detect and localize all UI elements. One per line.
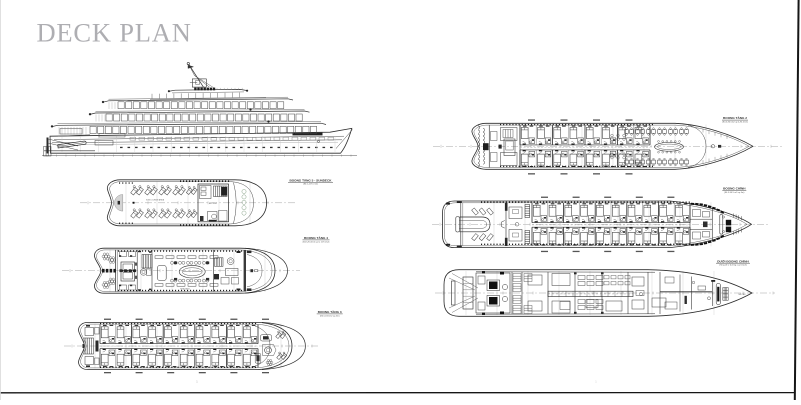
svg-text:(84.5-94.5m2 up to 117.5m2): (84.5-94.5m2 up to 117.5m2) (303, 240, 330, 243)
svg-text:MŨI TÀU: MŨI TÀU (739, 293, 747, 296)
svg-text:SUN LOUNGE AREA: SUN LOUNGE AREA (146, 198, 165, 201)
svg-text:BOONG TẦNG 4: BOONG TẦNG 4 (304, 236, 328, 240)
svg-text:DECK PLAN: DECK PLAN (37, 18, 192, 48)
svg-text:(84.5-94.5 m2 up 4m): (84.5-94.5 m2 up 4m) (724, 192, 744, 194)
svg-text:DƯỚI BOONG CHÍNH: DƯỚI BOONG CHÍNH (717, 258, 749, 263)
svg-text:BOONG TẦNG 5 - SUNDECK: BOONG TẦNG 5 - SUNDECK (290, 178, 333, 182)
svg-text:BOONG TẦNG 2: BOONG TẦNG 2 (723, 116, 747, 120)
svg-text:(84.5-117.5 m2): (84.5-117.5 m2) (303, 184, 318, 186)
svg-text:Bar 32m2: Bar 32m2 (209, 202, 217, 205)
svg-text:BOONG CHÍNH: BOONG CHÍNH (723, 186, 746, 191)
svg-text:(Tầng để ở đường của khách): (Tầng để ở đường của khách) (719, 264, 747, 267)
svg-text:BOONG TẦNG 3: BOONG TẦNG 3 (318, 310, 342, 314)
svg-text:(84.5-94.5m2 up 4m): (84.5-94.5m2 up 4m) (320, 315, 340, 317)
svg-text:(84.5-94.5m2 up 4-94.5m2): (84.5-94.5m2 up 4-94.5m2) (722, 122, 748, 124)
